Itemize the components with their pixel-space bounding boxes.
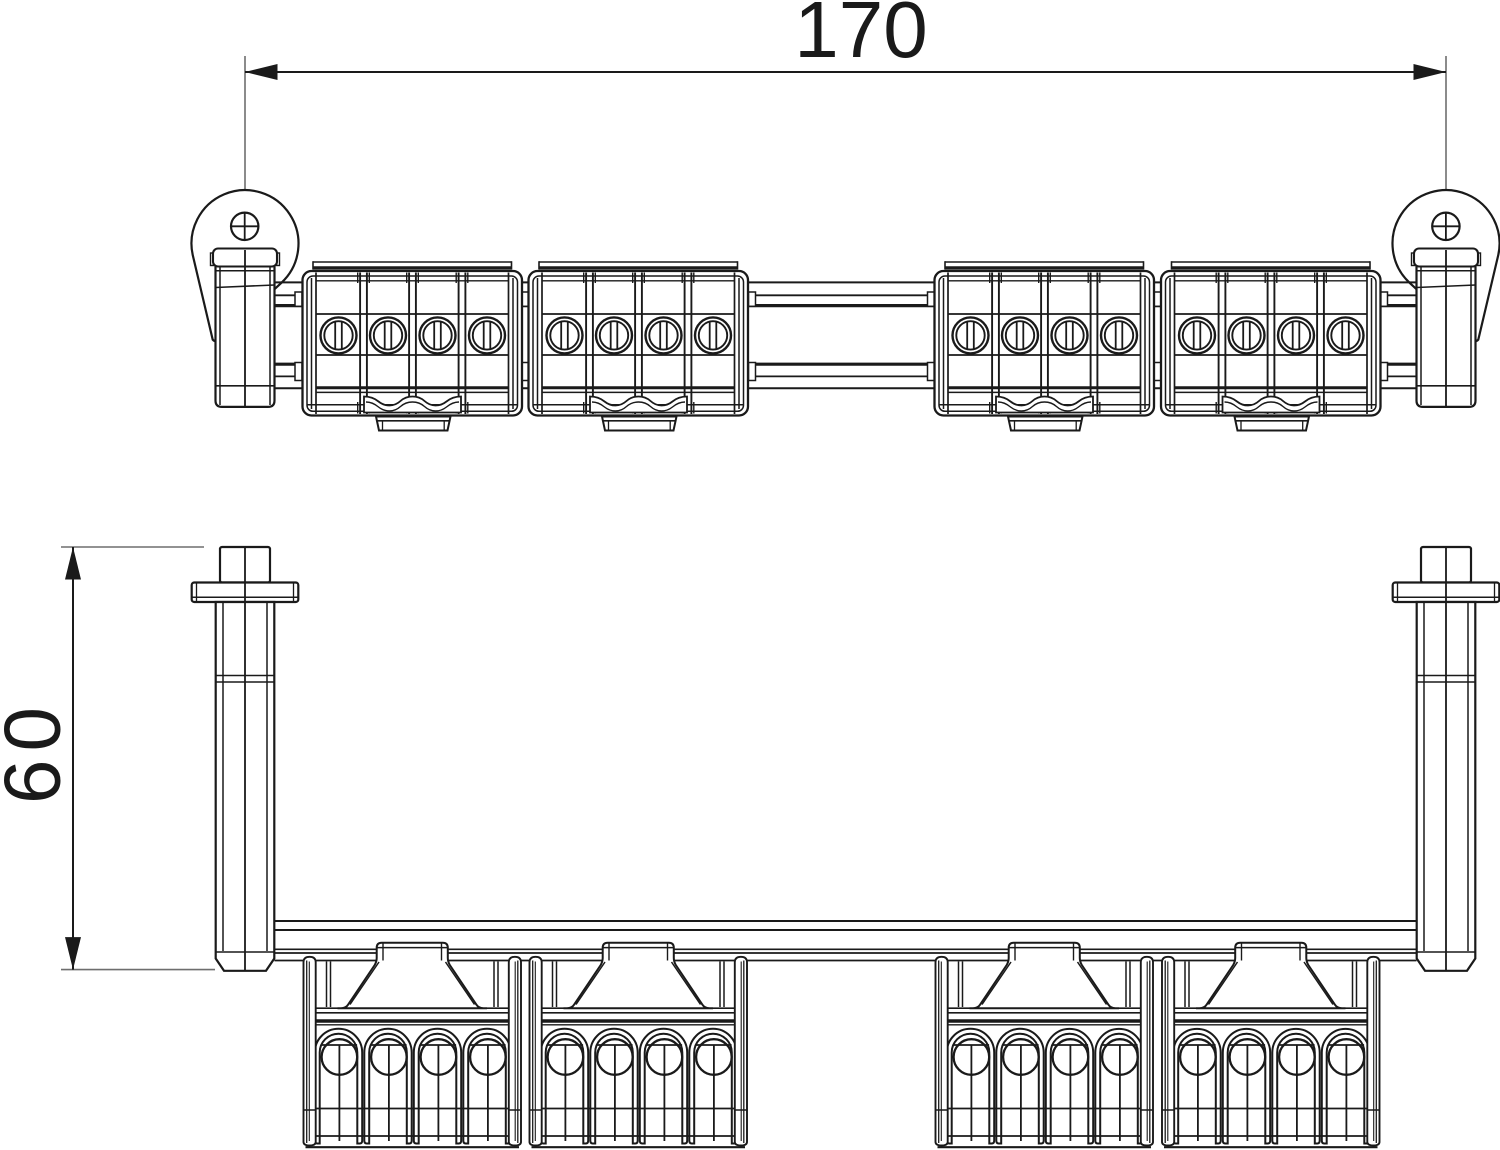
svg-text:60: 60 xyxy=(0,699,77,804)
svg-text:170: 170 xyxy=(794,0,927,74)
